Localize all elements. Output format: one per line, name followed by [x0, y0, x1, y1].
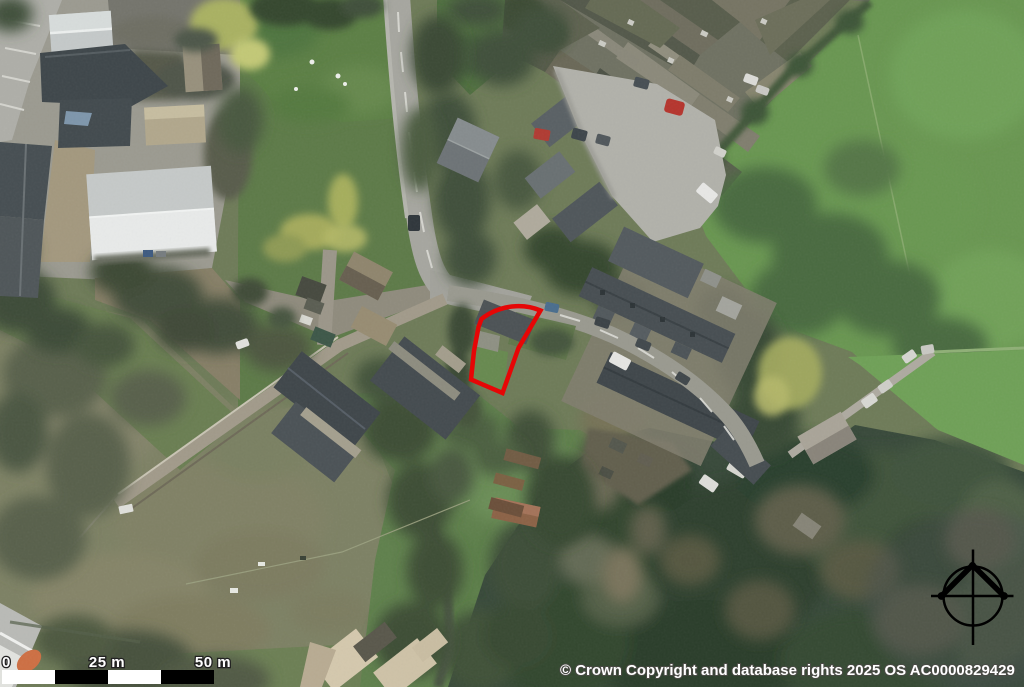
svg-text:© Crown Copyright and database: © Crown Copyright and database rights 20… — [560, 662, 1015, 679]
svg-text:50 m: 50 m — [195, 654, 231, 671]
svg-text:25 m: 25 m — [89, 654, 125, 671]
svg-text:0: 0 — [2, 654, 11, 671]
